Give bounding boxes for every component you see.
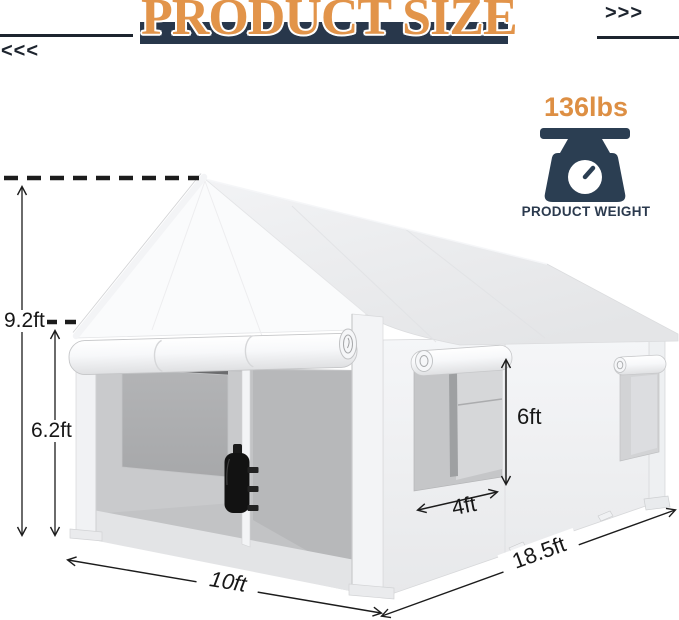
product-size-infographic: <<< PRODUCT SIZE >>> 136lbs PRODUCT WEIG…: [0, 0, 679, 620]
scale-icon: [531, 122, 641, 204]
left-decor-line: [0, 34, 133, 37]
wall-height-label: 6.2ft: [29, 420, 74, 442]
page-title: PRODUCT SIZE: [141, 0, 521, 44]
left-chevrons-icon: <<<: [1, 41, 39, 61]
weight-value: 136lbs: [531, 94, 641, 121]
side-window-small: [614, 355, 667, 461]
right-decor-line: [597, 36, 679, 39]
mesh-window: [122, 360, 228, 477]
right-chevrons-icon: >>>: [605, 3, 643, 23]
side-window-large: [410, 344, 512, 491]
tent-interior: [93, 360, 355, 592]
total-height-label: 9.2ft: [2, 310, 47, 332]
weight-label: PRODUCT WEIGHT: [516, 205, 656, 220]
window-height-label: 6ft: [517, 405, 541, 428]
